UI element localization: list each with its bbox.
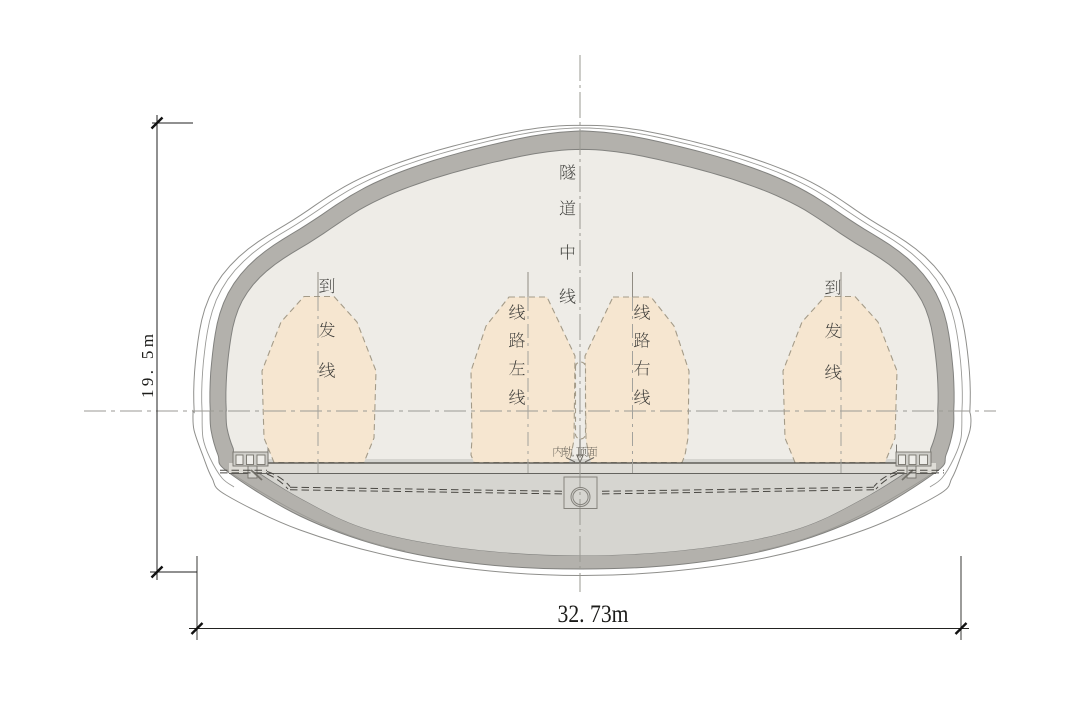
svg-text:32. 73m: 32. 73m <box>558 601 629 628</box>
